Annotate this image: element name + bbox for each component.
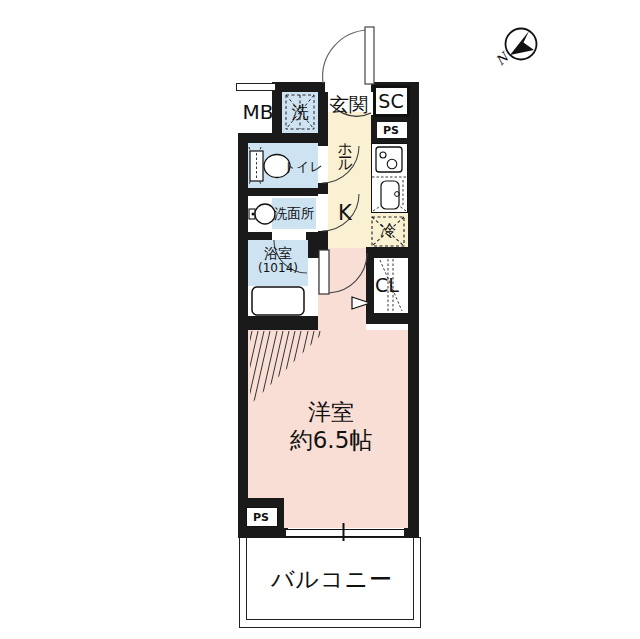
hall-label: ホール	[338, 133, 353, 166]
kitchen-sink-icon	[372, 177, 407, 211]
washer-label: 洗	[292, 104, 309, 121]
bathroom-label: 浴室	[264, 246, 292, 260]
toilet-label: トイレ	[283, 160, 323, 173]
washbasin-icon	[249, 204, 275, 224]
compass-icon	[506, 29, 537, 60]
pipe-space-bottom-label: PS	[253, 512, 269, 523]
stove-icon	[376, 147, 402, 172]
balcony-label: バルコニー	[271, 568, 393, 591]
room-door	[319, 250, 370, 309]
entrance-door	[323, 27, 374, 84]
main-room-size-label: 約6.5帖	[290, 429, 373, 452]
linework-layer	[0, 0, 640, 639]
main-room-label: 洋室	[308, 401, 354, 424]
washroom-label: 洗面所	[274, 207, 315, 221]
bathtub-icon	[252, 287, 304, 315]
floor-plan: MB 洗 玄関 SC PS ホール K トイレ 洗面所 浴室 (1014) 冷 …	[0, 0, 640, 639]
closet-label: CL	[375, 276, 399, 295]
pipe-space-top-label: PS	[383, 125, 399, 136]
bathroom-size-label: (1014)	[258, 262, 298, 274]
sloped-ceiling-hatch	[235, 331, 320, 406]
shoe-closet-label: SC	[378, 92, 403, 111]
entrance-label: 玄関	[330, 95, 368, 114]
door-direction-marker	[352, 297, 370, 309]
refrigerator-label: 冷	[380, 223, 396, 239]
meter-box-label: MB	[243, 102, 274, 122]
kitchen-label: K	[338, 203, 352, 224]
